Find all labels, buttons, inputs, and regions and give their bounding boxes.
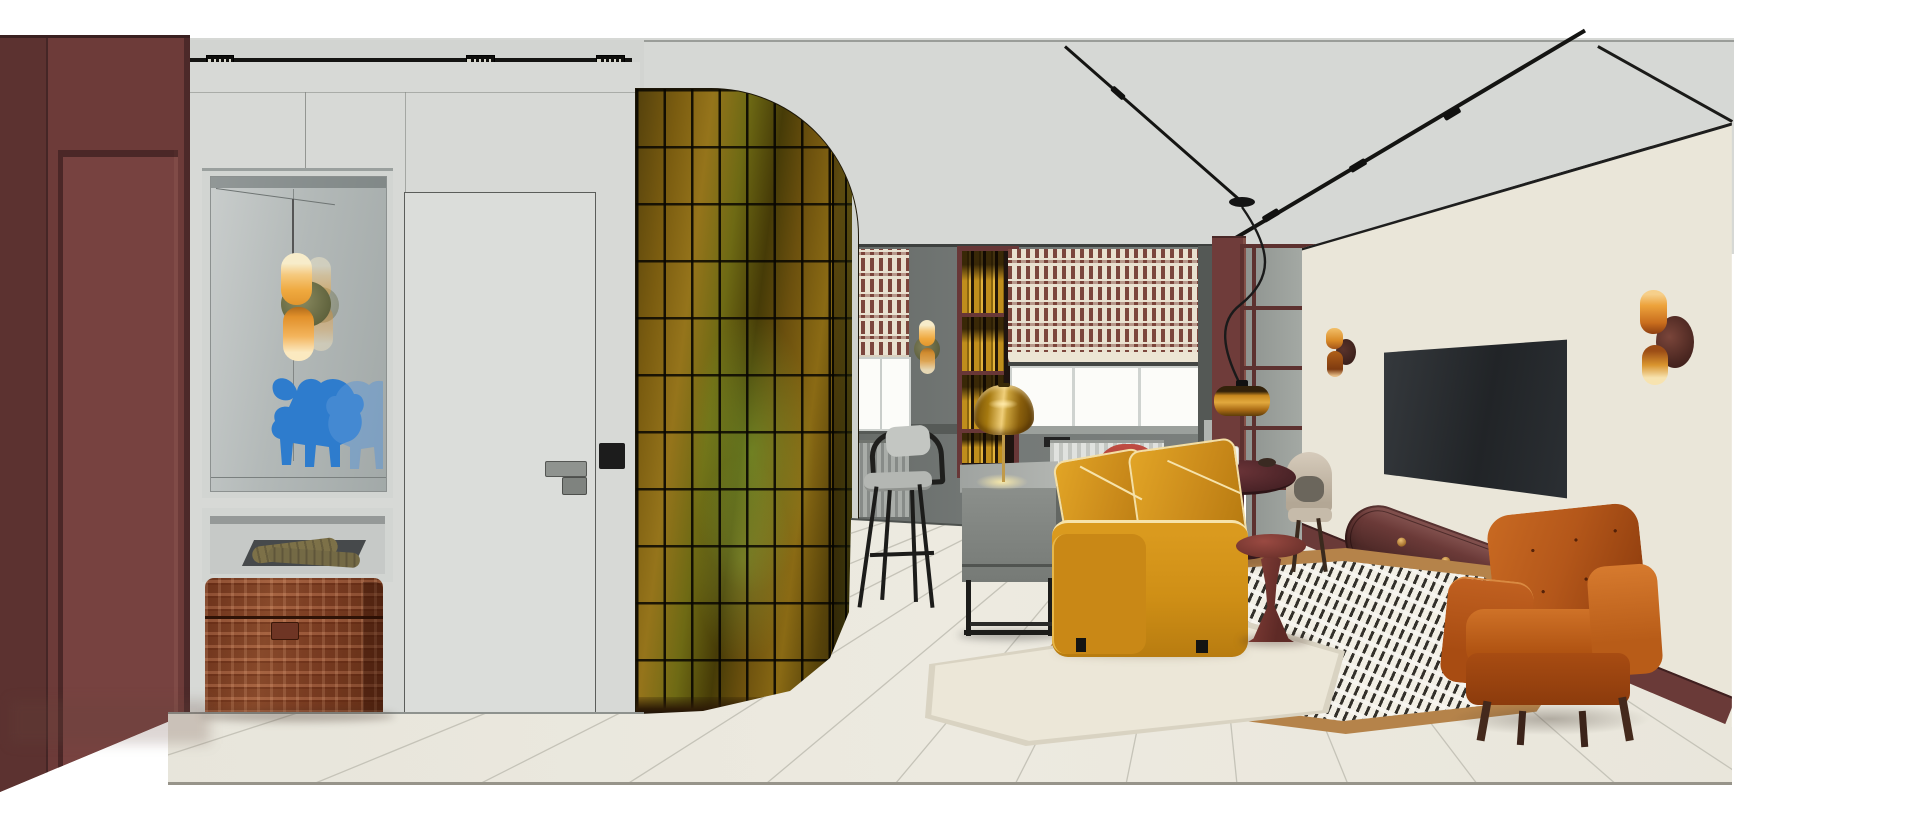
kitchen-wall-top-line: [848, 244, 1213, 247]
chair-seat: [1288, 508, 1332, 522]
maroon-wall: [0, 35, 190, 792]
mirror-niche: [202, 168, 393, 498]
window-right: [1010, 366, 1208, 430]
wall-floor-shadow: [10, 700, 210, 744]
desk-sled-bar-rear: [970, 622, 1054, 626]
burnt-orange-armchair: [1440, 505, 1655, 740]
sconce-bulb-icon: [281, 253, 312, 305]
sconce-bulb-icon: [1642, 345, 1668, 385]
bottle-shelf-cell: [962, 317, 1004, 371]
mustard-velvet-sofa: [1046, 438, 1248, 654]
soffit-edge-line: [190, 92, 640, 93]
amber-glass-table-lamp: [974, 385, 1034, 435]
chair-arm-gap: [1294, 476, 1324, 502]
chest-side-shade: [363, 582, 383, 715]
window-mullion: [1072, 368, 1075, 428]
pendant-cord: [1200, 200, 1300, 400]
kitchen-sconce-bulb-icon: [920, 348, 935, 374]
maroon-wall-top-line: [0, 35, 190, 38]
bottle-shelf-cell: [962, 251, 1004, 313]
maroon-wall-edge: [46, 35, 48, 792]
bottle-shelf-cell: [962, 433, 1004, 463]
mirror-perspective-line: [216, 188, 335, 205]
lamp-inner-glow-ring: [988, 399, 1018, 409]
window-sill: [1006, 426, 1208, 434]
chair-leg: [880, 490, 892, 600]
door-handle: [545, 461, 587, 477]
desk-leg: [966, 580, 971, 636]
armchair-base: [1466, 653, 1630, 705]
chest-lid-seam: [205, 616, 383, 619]
door-handle-lock: [562, 477, 587, 495]
blue-bull-figurine: [261, 367, 383, 487]
tv-screen: [1384, 338, 1567, 500]
lamp-stem: [1002, 434, 1005, 482]
sconce-bulb-icon: [1326, 328, 1343, 349]
chest-clasp: [271, 622, 299, 640]
render-bottom-edge: [168, 782, 1732, 785]
gloves-shelf-interior: [210, 516, 385, 574]
chair-back-pad: [885, 425, 931, 458]
dark-bowl: [1258, 458, 1276, 467]
light-switch: [599, 443, 625, 469]
sofa-foot: [1076, 638, 1086, 652]
woven-leather-chest: [205, 578, 383, 715]
gloves-shelf-niche: [202, 508, 393, 582]
chair-leg: [910, 490, 918, 602]
lamp-cap: [998, 383, 1010, 387]
niche-shelf-line: [211, 477, 386, 478]
chair-leg: [918, 484, 935, 608]
chair-leg: [858, 486, 879, 607]
counter-chair: [856, 420, 948, 612]
sconce-bulb-icon: [283, 307, 314, 361]
niche-top-shadow: [211, 177, 386, 188]
window-mullion: [1138, 368, 1141, 428]
sofa-arm-panel: [1052, 534, 1146, 654]
sconce-bulb-icon: [1327, 351, 1343, 377]
interior-rendering: [0, 0, 1920, 814]
roman-shade-right: [1008, 249, 1206, 363]
kitchen-sconce-bulb-icon: [919, 320, 935, 346]
chest-shadow: [200, 710, 395, 722]
roman-shade-left: [852, 249, 909, 358]
curved-amber-glass-block-wall: [635, 88, 859, 718]
martini-side-table-top: [1236, 534, 1306, 558]
maroon-door-panel: [58, 150, 178, 775]
niche-mirror: [210, 176, 387, 492]
sconce-cord: [292, 199, 294, 257]
entry-door: [404, 192, 596, 716]
sofa-foot: [1196, 640, 1208, 653]
desk-sled-bar: [964, 630, 1056, 635]
maroon-wall-return: [0, 35, 46, 792]
amber-drum-pendant: [1214, 386, 1270, 416]
sconce-bulb-icon: [1640, 290, 1667, 334]
window-mullion: [880, 359, 882, 429]
